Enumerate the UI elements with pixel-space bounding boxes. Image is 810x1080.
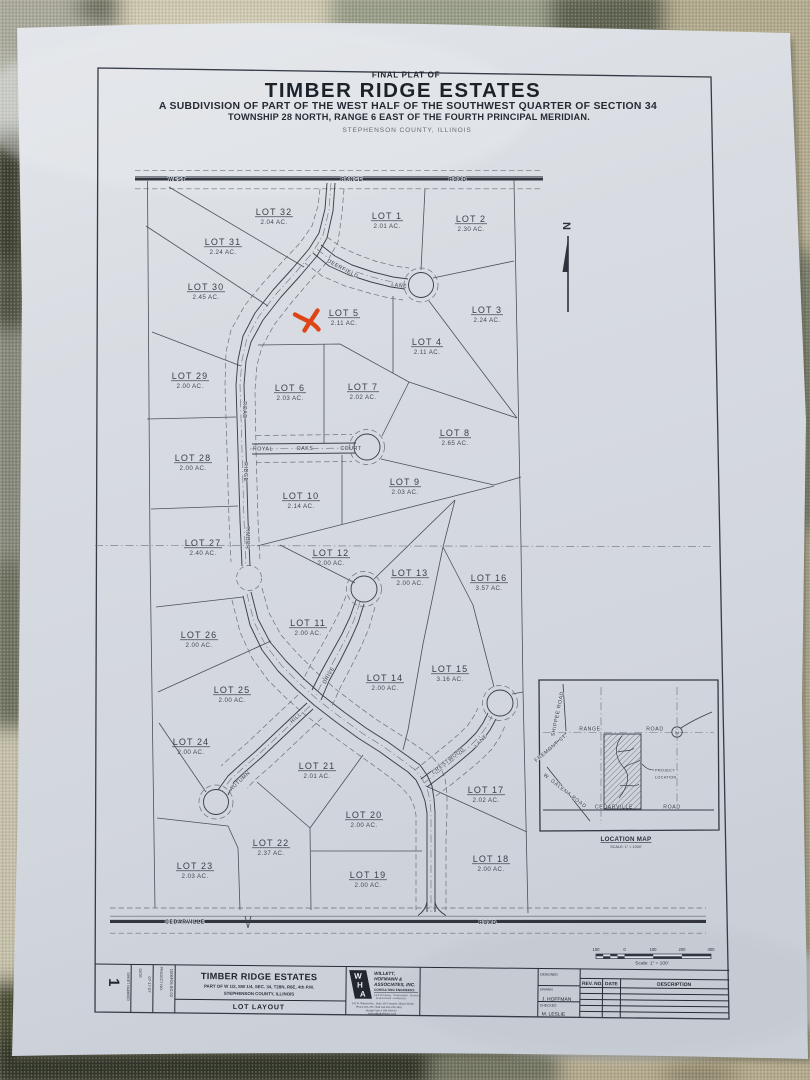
svg-text:2.00 AC.: 2.00 AC. — [178, 749, 205, 756]
svg-text:2.00 AC.: 2.00 AC. — [351, 822, 378, 829]
svg-text:SCALE: 1” = 1000’: SCALE: 1” = 1000’ — [610, 845, 642, 849]
svg-text:2.03 AC.: 2.03 AC. — [392, 489, 419, 496]
svg-text:2.00 AC.: 2.00 AC. — [478, 866, 505, 873]
svg-text:LOT 20: LOT 20 — [346, 810, 382, 820]
svg-text:LOT 24: LOT 24 — [173, 737, 209, 747]
svg-text:LOT 4: LOT 4 — [412, 337, 442, 347]
svg-text:LOT 26: LOT 26 — [181, 630, 217, 640]
svg-text:OAKS: OAKS — [297, 446, 314, 452]
svg-text:Environmental - Architecture: Environmental - Architecture — [376, 997, 407, 1000]
svg-text:www.willetthofmann.com: www.willetthofmann.com — [368, 1011, 396, 1015]
svg-text:LOCATION: LOCATION — [655, 776, 677, 780]
svg-text:LOT 8: LOT 8 — [440, 428, 470, 438]
svg-text:2.02 AC.: 2.02 AC. — [350, 394, 377, 401]
svg-text:2.00 AC.: 2.00 AC. — [355, 882, 382, 889]
svg-text:WEST: WEST — [168, 177, 186, 183]
svg-text:TIMBER RIDGE ESTATES: TIMBER RIDGE ESTATES — [201, 971, 318, 982]
svg-text:ROYAL: ROYAL — [253, 447, 273, 453]
svg-text:M. LESLIE: M. LESLIE — [542, 1012, 566, 1018]
svg-text:2.00 AC.: 2.00 AC. — [397, 580, 424, 587]
svg-text:DESIGNED: DESIGNED — [540, 973, 558, 977]
svg-text:RIDGE: RIDGE — [242, 462, 248, 481]
svg-text:2.00 AC.: 2.00 AC. — [295, 630, 322, 637]
svg-text:2.03 AC.: 2.03 AC. — [182, 873, 209, 880]
svg-text:A SUBDIVISION OF PART OF THE W: A SUBDIVISION OF PART OF THE WEST HALF O… — [159, 101, 657, 112]
svg-text:ROAD: ROAD — [449, 177, 467, 183]
svg-text:H: H — [357, 981, 363, 990]
svg-text:LOT 32: LOT 32 — [256, 207, 292, 217]
svg-text:LOT 13: LOT 13 — [392, 568, 428, 578]
svg-text:ASSOCIATES, INC.: ASSOCIATES, INC. — [373, 982, 415, 987]
svg-text:2.14 AC.: 2.14 AC. — [288, 503, 315, 510]
svg-text:LOT 30: LOT 30 — [188, 282, 224, 292]
svg-text:2.24 AC.: 2.24 AC. — [210, 249, 237, 256]
svg-text:LOT 2: LOT 2 — [456, 214, 486, 224]
svg-text:LOT 15: LOT 15 — [432, 664, 468, 674]
svg-text:DRAWN: DRAWN — [540, 988, 553, 992]
svg-text:ROAD: ROAD — [663, 805, 680, 811]
svg-text:PROJECT NO.: PROJECT NO. — [159, 967, 163, 991]
svg-text:LOT 7: LOT 7 — [348, 382, 378, 392]
svg-text:LOT 1: LOT 1 — [372, 211, 402, 221]
svg-text:STEPHENSON COUNTY, ILLINOIS: STEPHENSON COUNTY, ILLINOIS — [224, 991, 295, 997]
svg-text:LOT 6: LOT 6 — [275, 383, 305, 393]
svg-text:2.30 AC.: 2.30 AC. — [458, 226, 485, 233]
svg-text:RANGE: RANGE — [341, 177, 363, 183]
svg-text:2.24 AC.: 2.24 AC. — [474, 317, 501, 324]
svg-text:LOT 25: LOT 25 — [214, 685, 250, 695]
svg-text:2.11 AC.: 2.11 AC. — [414, 349, 440, 356]
svg-text:LOT 16: LOT 16 — [471, 573, 507, 583]
svg-text:W: W — [354, 972, 362, 981]
svg-text:LOT 5: LOT 5 — [329, 308, 359, 318]
svg-text:LOT 27: LOT 27 — [185, 538, 221, 548]
svg-text:2.00 AC.: 2.00 AC. — [318, 560, 345, 567]
svg-text:LOT 9: LOT 9 — [390, 477, 420, 487]
svg-text:ROAD: ROAD — [479, 920, 497, 926]
svg-text:HOFMANN &: HOFMANN & — [374, 976, 403, 981]
svg-text:LOT 28: LOT 28 — [175, 453, 211, 463]
svg-text:LOT 29: LOT 29 — [172, 371, 208, 381]
svg-text:CEDARVILLE: CEDARVILLE — [165, 920, 205, 926]
svg-text:2.01 AC.: 2.01 AC. — [304, 773, 331, 780]
svg-text:WILLETT,: WILLETT, — [374, 971, 395, 976]
svg-text:LOT 10: LOT 10 — [283, 491, 319, 501]
svg-text:2.40 AC.: 2.40 AC. — [190, 550, 217, 557]
svg-text:N: N — [560, 222, 572, 230]
svg-text:LOT 3: LOT 3 — [472, 305, 502, 315]
svg-text:1: 1 — [105, 978, 122, 987]
svg-text:Scale: 1” = 100’: Scale: 1” = 100’ — [635, 961, 668, 967]
svg-text:2.11 AC.: 2.11 AC. — [331, 320, 357, 327]
svg-text:TOWNSHIP 28 NORTH, RANGE 6 EAS: TOWNSHIP 28 NORTH, RANGE 6 EAST OF THE F… — [228, 112, 590, 122]
svg-text:1006F05 SG 03: 1006F05 SG 03 — [169, 969, 174, 998]
svg-text:A: A — [360, 990, 366, 999]
svg-text:DATE: DATE — [138, 968, 142, 978]
svg-text:ROAD: ROAD — [646, 727, 663, 733]
svg-text:LOT 11: LOT 11 — [290, 618, 326, 628]
svg-text:LOT 23: LOT 23 — [177, 861, 213, 871]
svg-text:3.16 AC.: 3.16 AC. — [437, 676, 464, 683]
svg-text:2.04 AC.: 2.04 AC. — [261, 219, 288, 226]
svg-text:2.00 AC.: 2.00 AC. — [372, 685, 399, 692]
svg-text:3.57 AC.: 3.57 AC. — [476, 585, 503, 592]
svg-text:2.00 AC.: 2.00 AC. — [219, 697, 246, 704]
svg-text:2.02 AC.: 2.02 AC. — [473, 797, 500, 804]
svg-text:100: 100 — [650, 947, 658, 952]
svg-text:LOCATION MAP: LOCATION MAP — [601, 836, 652, 843]
svg-text:TIMBER: TIMBER — [244, 526, 250, 549]
svg-text:LOT 17: LOT 17 — [468, 785, 504, 795]
svg-text:2.01 AC.: 2.01 AC. — [374, 223, 401, 230]
svg-text:LOT 12: LOT 12 — [313, 548, 349, 558]
svg-text:COURT: COURT — [340, 446, 362, 452]
svg-text:LOT 18: LOT 18 — [473, 854, 509, 864]
svg-text:LOT 21: LOT 21 — [299, 761, 335, 771]
svg-text:CHECKED: CHECKED — [540, 1004, 557, 1008]
svg-text:LOT 14: LOT 14 — [367, 673, 403, 683]
svg-text:2.45 AC.: 2.45 AC. — [193, 294, 220, 301]
svg-text:REV. NO.: REV. NO. — [582, 981, 603, 987]
svg-text:DATE: DATE — [605, 981, 619, 987]
svg-text:34: 34 — [675, 730, 680, 735]
svg-text:2.00 AC.: 2.00 AC. — [177, 383, 204, 390]
svg-text:2.00 AC.: 2.00 AC. — [180, 465, 207, 472]
svg-text:LOT 22: LOT 22 — [253, 838, 289, 848]
svg-text:2.65 AC.: 2.65 AC. — [442, 440, 469, 447]
svg-text:LOT LAYOUT: LOT LAYOUT — [233, 1004, 285, 1012]
svg-text:LOT 31: LOT 31 — [205, 237, 241, 247]
svg-text:RANGE: RANGE — [579, 727, 600, 733]
svg-text:DESCRIPTION: DESCRIPTION — [657, 982, 692, 988]
svg-text:CONSULTING ENGINEERS: CONSULTING ENGINEERS — [374, 988, 415, 992]
svg-text:ROAD: ROAD — [241, 401, 247, 418]
svg-text:LOT 19: LOT 19 — [350, 870, 386, 880]
svg-text:PROJECT: PROJECT — [655, 769, 675, 773]
svg-text:SHEET NUMBER: SHEET NUMBER — [126, 972, 130, 1001]
svg-text:TIMBER RIDGE ESTATES: TIMBER RIDGE ESTATES — [265, 79, 541, 102]
svg-text:2.37 AC.: 2.37 AC. — [258, 850, 285, 857]
svg-text:07-17-07: 07-17-07 — [147, 977, 152, 994]
svg-text:2.03 AC.: 2.03 AC. — [277, 395, 304, 402]
svg-text:STEPHENSON COUNTY, ILLINOIS: STEPHENSON COUNTY, ILLINOIS — [342, 127, 471, 134]
svg-text:100: 100 — [593, 947, 601, 952]
svg-text:2.00 AC.: 2.00 AC. — [186, 642, 213, 649]
svg-text:300: 300 — [708, 947, 716, 952]
svg-text:200: 200 — [679, 947, 687, 952]
